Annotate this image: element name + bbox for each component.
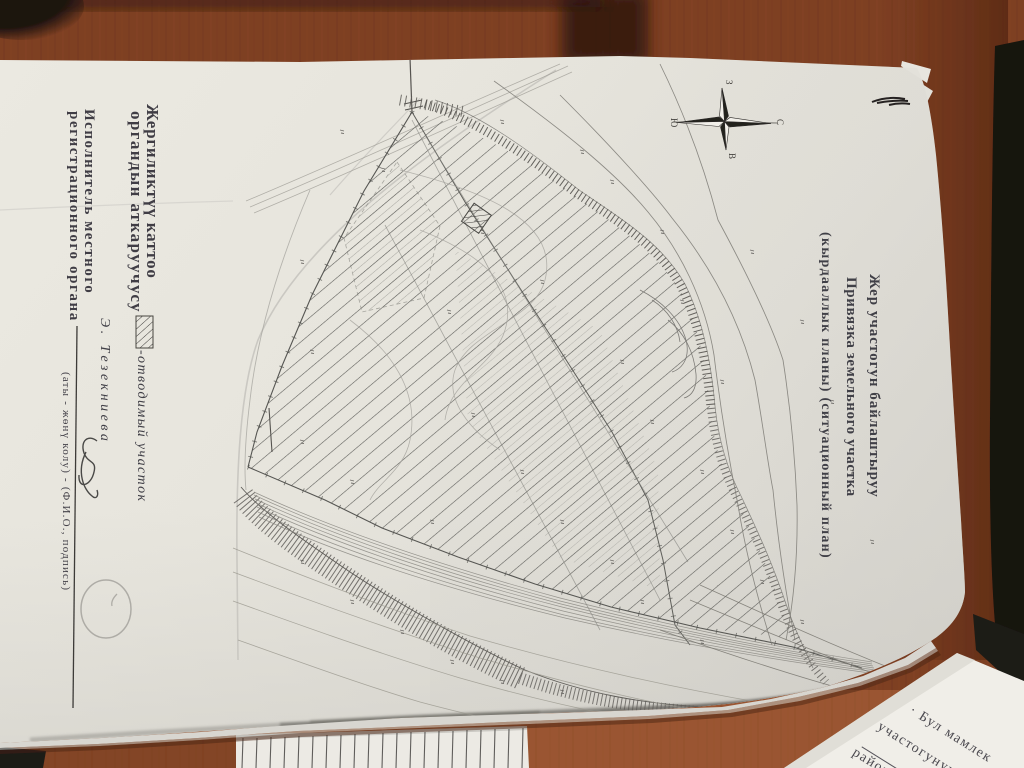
svg-text:(кырдааллык планы) (ситуационн: (кырдааллык планы) (ситуационный план) — [818, 232, 833, 559]
svg-text:(аты - жөнү колу) - (Ф.И.О., п: (аты - жөнү колу) - (Ф.И.О., подпись) — [60, 372, 72, 591]
svg-text:Ю: Ю — [669, 118, 679, 127]
svg-text:-отводимый участок: -отводимый участок — [134, 350, 149, 502]
svg-text:регистрационного органа: регистрационного органа — [66, 111, 82, 322]
svg-text:органдын аткаруучусу: органдын аткаруучусу — [127, 111, 146, 313]
svg-text:С: С — [775, 119, 785, 125]
svg-text:В: В — [727, 153, 737, 159]
svg-text:Э. Тезекниева: Э. Тезекниева — [97, 318, 112, 444]
svg-text:Исполнитель местного: Исполнитель местного — [81, 109, 97, 294]
svg-text:З: З — [724, 80, 734, 85]
svg-text:Жер участогун байлаштыруу: Жер участогун байлаштыруу — [866, 274, 882, 498]
svg-text:Привязка земельного участка: Привязка земельного участка — [843, 277, 859, 497]
